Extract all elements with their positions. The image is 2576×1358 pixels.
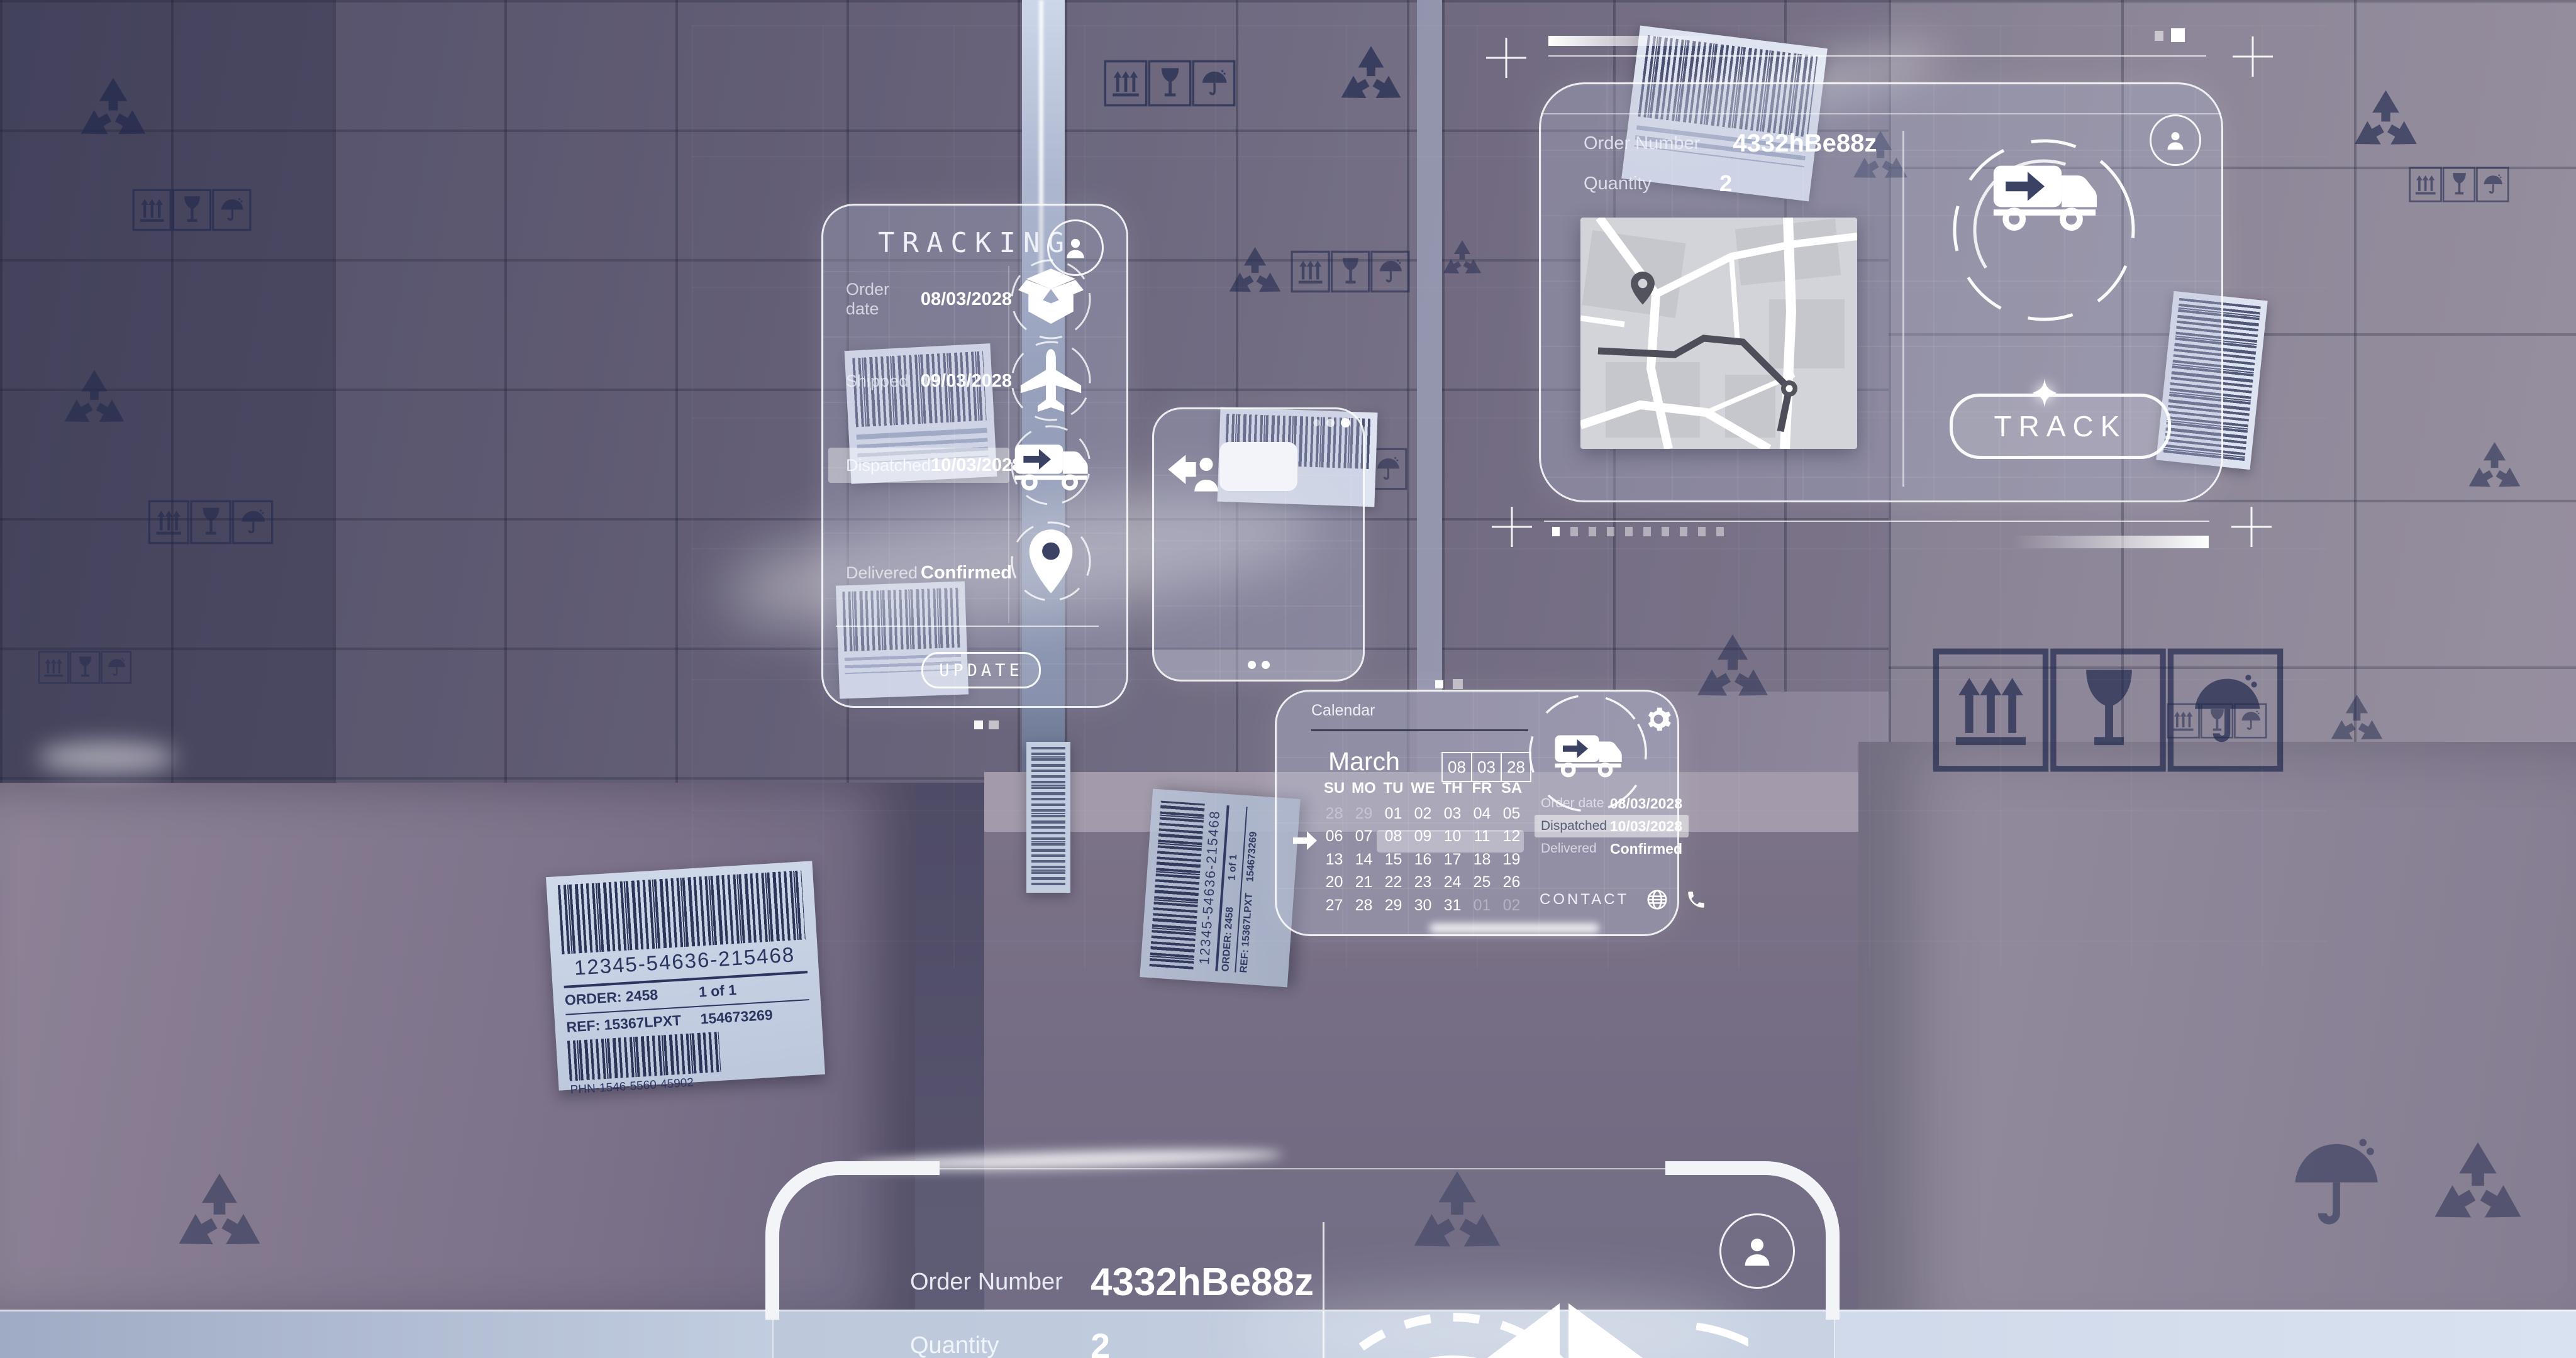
status-pager-dot[interactable]	[1680, 527, 1687, 536]
date-box: 08	[1441, 752, 1472, 782]
share-mini-panel	[1152, 407, 1365, 682]
warehouse-hud-scene: 12345-54636-215468 ORDER: 24581 of 1 REF…	[0, 0, 2576, 1358]
date-box: 28	[1501, 752, 1531, 782]
track-button[interactable]: TRACK	[1950, 394, 2171, 459]
calendar-detail-row: Delivered Confirmed	[1535, 837, 1689, 860]
calendar-title: Calendar	[1311, 702, 1375, 720]
gear-icon[interactable]	[1645, 705, 1672, 733]
calendar-day[interactable]: 04	[1467, 805, 1497, 823]
calendar-day[interactable]: 26	[1497, 873, 1526, 892]
status-pager	[1552, 527, 1724, 536]
hud-square	[2171, 28, 2185, 42]
week-arrow-icon	[1293, 831, 1317, 850]
message-card	[1219, 442, 1297, 491]
calendar-day[interactable]: 03	[1438, 805, 1467, 823]
label-order-line: ORDER: 2458	[564, 984, 699, 1009]
globe-icon[interactable]	[1645, 888, 1669, 912]
delivery-van-icon	[1553, 731, 1623, 778]
calendar-day[interactable]: 31	[1438, 897, 1467, 915]
calendar-day[interactable]: 02	[1497, 897, 1526, 915]
hud-line	[1544, 521, 2209, 522]
calendar-day[interactable]: 29	[1349, 805, 1379, 823]
calendar-day[interactable]: 28	[1349, 897, 1379, 915]
delivery-map[interactable]	[1580, 218, 1857, 449]
quantity-label: Quantity	[910, 1332, 1091, 1358]
hud-gradient-bar	[1548, 36, 1743, 46]
day-header: MO	[1349, 780, 1379, 797]
divider	[1902, 131, 1904, 487]
tracking-row[interactable]: Dispatched 10/03/2028	[828, 448, 1009, 483]
calendar-day[interactable]: 15	[1379, 851, 1408, 869]
calendar-details: Order date 08/03/2028Dispatched 10/03/20…	[1535, 792, 1689, 860]
calendar-day[interactable]: 28	[1319, 805, 1349, 823]
mini-pager-dot[interactable]	[1248, 661, 1256, 669]
detail-label: Dispatched	[1541, 819, 1607, 834]
calendar-day[interactable]: 20	[1319, 873, 1349, 892]
calendar-day[interactable]: 30	[1408, 897, 1438, 915]
calendar-day[interactable]: 23	[1408, 873, 1438, 892]
calendar-day[interactable]: 13	[1319, 851, 1349, 869]
contact-label: CONTACT	[1540, 891, 1629, 908]
divider	[1323, 1222, 1324, 1358]
shipping-label: 12345-54636-215468 ORDER: 24581 of 1 REF…	[546, 861, 825, 1090]
label-ref-number: 154673269	[700, 1007, 774, 1028]
glow-bar	[1430, 924, 1599, 933]
calendar-day[interactable]: 27	[1319, 897, 1349, 915]
calendar-pager-dot[interactable]	[1435, 680, 1443, 688]
bottom-order-panel: Order Number 4332hBe88z Quantity 2	[772, 1168, 1835, 1358]
detail-value: 08/03/2028	[1610, 795, 1682, 812]
order-status-panel: Order Number 4332hBe88z Quantity 2 TRACK	[1539, 82, 2223, 502]
calendar-day[interactable]: 21	[1349, 873, 1379, 892]
detail-label: Delivered	[1541, 841, 1597, 856]
tracking-row[interactable]: Delivered Confirmed	[823, 555, 1012, 590]
calendar-day[interactable]: 25	[1467, 873, 1497, 892]
calendar-day[interactable]: 10	[1438, 827, 1467, 846]
date-boxes: 080328	[1443, 752, 1531, 782]
order-number-label: Order Number	[910, 1269, 1091, 1296]
detail-label: Order date	[1541, 796, 1604, 811]
quantity-label: Quantity	[1584, 174, 1652, 194]
calendar-day[interactable]: 09	[1408, 827, 1438, 846]
hud-square	[2155, 31, 2163, 41]
calendar-day[interactable]: 18	[1467, 851, 1497, 869]
status-pager-dot[interactable]	[1662, 527, 1669, 536]
order-number-value: 4332hBe88z	[1733, 130, 1877, 158]
status-pager-dot[interactable]	[1643, 527, 1651, 536]
day-header: TH	[1438, 780, 1467, 797]
calendar-day[interactable]: 22	[1379, 873, 1408, 892]
calendar-day[interactable]: 08	[1379, 827, 1408, 846]
status-pager-dot[interactable]	[1698, 527, 1706, 536]
calendar-day[interactable]: 24	[1438, 873, 1467, 892]
barcode	[558, 870, 806, 954]
calendar-day[interactable]: 12	[1497, 827, 1526, 846]
quantity-value: 2	[1719, 170, 1732, 197]
calendar-day[interactable]: 17	[1438, 851, 1467, 869]
calendar-pager-dot[interactable]	[1453, 679, 1463, 689]
calendar-month: March	[1328, 747, 1400, 776]
calendar-day[interactable]: 01	[1467, 897, 1497, 915]
day-header: SU	[1319, 780, 1349, 797]
window-dots	[1313, 418, 1350, 428]
tracking-row[interactable]: Shipped 09/03/2028	[823, 363, 1012, 399]
detail-value: Confirmed	[1610, 841, 1682, 858]
barcode-label	[1026, 742, 1070, 893]
sparkle-icon	[2030, 378, 2059, 407]
status-pager-dot[interactable]	[1552, 527, 1560, 536]
tracking-pager-dot[interactable]	[989, 720, 999, 729]
phone-icon[interactable]	[1685, 889, 1707, 910]
calendar-day[interactable]: 14	[1349, 851, 1379, 869]
calendar-day[interactable]: 16	[1408, 851, 1438, 869]
calendar-detail-row: Dispatched 10/03/2028	[1535, 815, 1689, 837]
calendar-day-headers: SUMOTUWETHFRSA	[1319, 780, 1526, 797]
calendar-day[interactable]: 05	[1497, 805, 1526, 823]
delivery-van-icon	[1013, 439, 1089, 491]
mini-pager-dot[interactable]	[1262, 661, 1270, 669]
mini-panel-footer	[1154, 649, 1363, 680]
tracking-row-label: Shipped	[823, 372, 921, 391]
calendar-panel: Calendar March 080328 SUMOTUWETHFRSA 282…	[1275, 690, 1679, 936]
day-header: WE	[1408, 780, 1438, 797]
tracking-row-value: 09/03/2028	[921, 371, 1012, 392]
divider	[1311, 729, 1528, 731]
user-avatar-button[interactable]	[1719, 1213, 1795, 1289]
box-stack	[0, 0, 333, 786]
tracking-row-value: Confirmed	[921, 563, 1012, 583]
calendar-day[interactable]: 02	[1408, 805, 1438, 823]
calendar-day[interactable]: 19	[1497, 851, 1526, 869]
day-header: TU	[1379, 780, 1408, 797]
delivery-van-icon	[1991, 158, 2098, 231]
divider	[836, 626, 1099, 627]
airplane-icon	[1016, 346, 1086, 416]
open-box-icon	[1018, 268, 1084, 330]
sky-gap	[1417, 0, 1442, 692]
hud-line	[1548, 55, 2206, 57]
tracking-pager-dot[interactable]	[974, 720, 983, 729]
tracking-row-value: 10/03/2028	[931, 455, 1022, 476]
order-number-value: 4332hBe88z	[1091, 1260, 1314, 1305]
tracking-panel: TRACKING Order date 08/03/2028Shipped 09…	[821, 204, 1128, 708]
status-pager-dot[interactable]	[1589, 527, 1596, 536]
status-pager-dot[interactable]	[1607, 527, 1614, 536]
order-number-label: Order Number	[1584, 133, 1700, 154]
barcode	[1150, 801, 1205, 969]
tracking-row-label: Delivered	[823, 563, 921, 583]
day-header: FR	[1467, 780, 1497, 797]
date-box: 03	[1471, 752, 1502, 782]
status-pager-dot[interactable]	[1716, 527, 1724, 536]
update-button[interactable]: UPDATE	[921, 652, 1041, 688]
user-icon	[2163, 128, 2188, 153]
label-ref-line: REF: 15367LPXT	[566, 1011, 701, 1036]
tracking-row-label: Dispatched	[828, 456, 931, 475]
share-user-icon[interactable]	[1167, 453, 1219, 493]
hud-gradient-bar	[2012, 536, 2209, 548]
tracking-row-value: 08/03/2028	[921, 289, 1012, 310]
status-pager-dot[interactable]	[1570, 527, 1578, 536]
tracking-row-label: Order date	[823, 280, 921, 319]
quantity-value: 2	[1091, 1325, 1110, 1358]
detail-value: 10/03/2028	[1610, 818, 1682, 835]
calendar-detail-row: Order date 08/03/2028	[1535, 792, 1689, 815]
calendar-day[interactable]: 06	[1319, 827, 1349, 846]
user-avatar-button[interactable]	[2150, 114, 2201, 166]
user-icon	[1062, 234, 1089, 262]
tracking-row[interactable]: Order date 08/03/2028	[823, 282, 1012, 317]
divider	[1541, 113, 2221, 114]
user-icon	[1738, 1232, 1777, 1271]
day-header: SA	[1497, 780, 1526, 797]
calendar-day[interactable]: 11	[1467, 827, 1497, 846]
label-sheet-line: 1 of 1	[698, 981, 737, 1001]
contact-row: CONTACT	[1540, 888, 1707, 912]
barcode	[567, 1032, 721, 1081]
user-avatar-button[interactable]	[1047, 219, 1104, 276]
foreground-box	[1858, 742, 2576, 1358]
calendar-day[interactable]: 07	[1349, 827, 1379, 846]
status-pager-dot[interactable]	[1625, 527, 1633, 536]
calendar-day[interactable]: 01	[1379, 805, 1408, 823]
calendar-grid: 2829010203040506070809101112131415161718…	[1319, 802, 1526, 917]
location-pin-icon	[1026, 527, 1076, 595]
calendar-day[interactable]: 29	[1379, 897, 1408, 915]
